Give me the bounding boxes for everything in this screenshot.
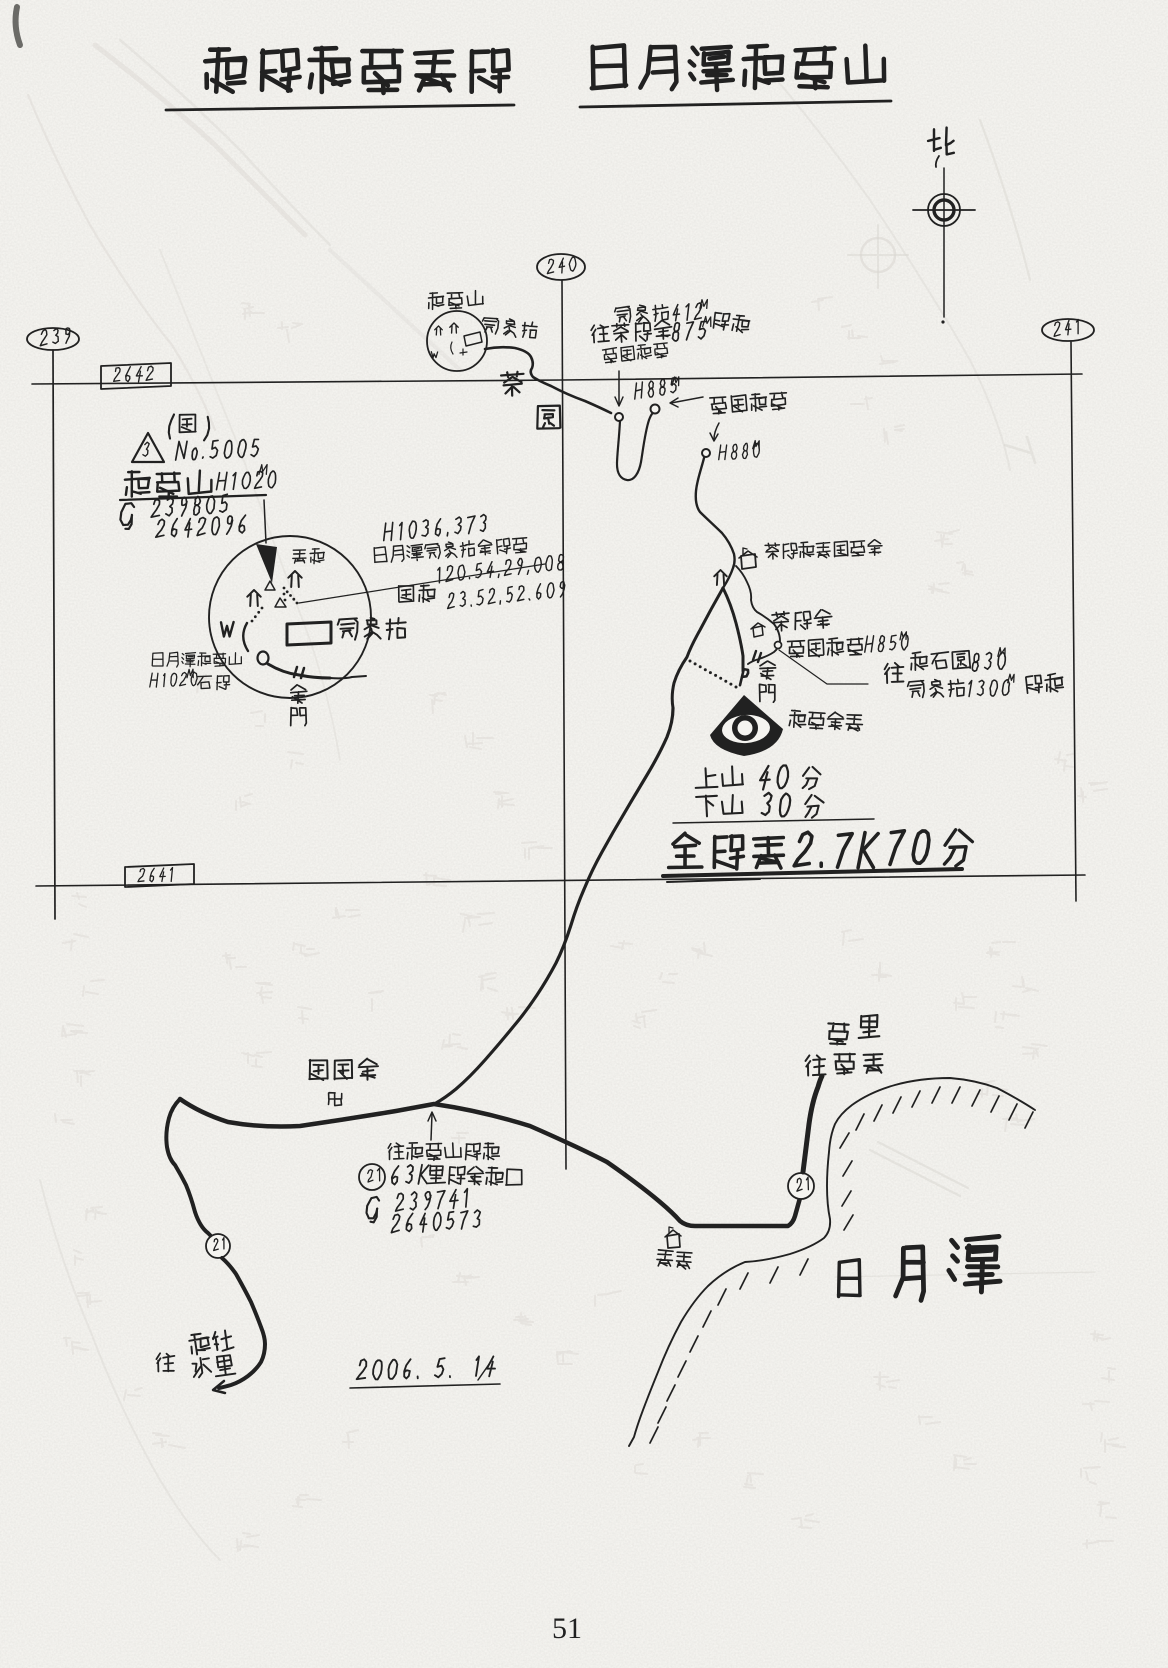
svg-text:51: 51	[552, 1612, 582, 1645]
